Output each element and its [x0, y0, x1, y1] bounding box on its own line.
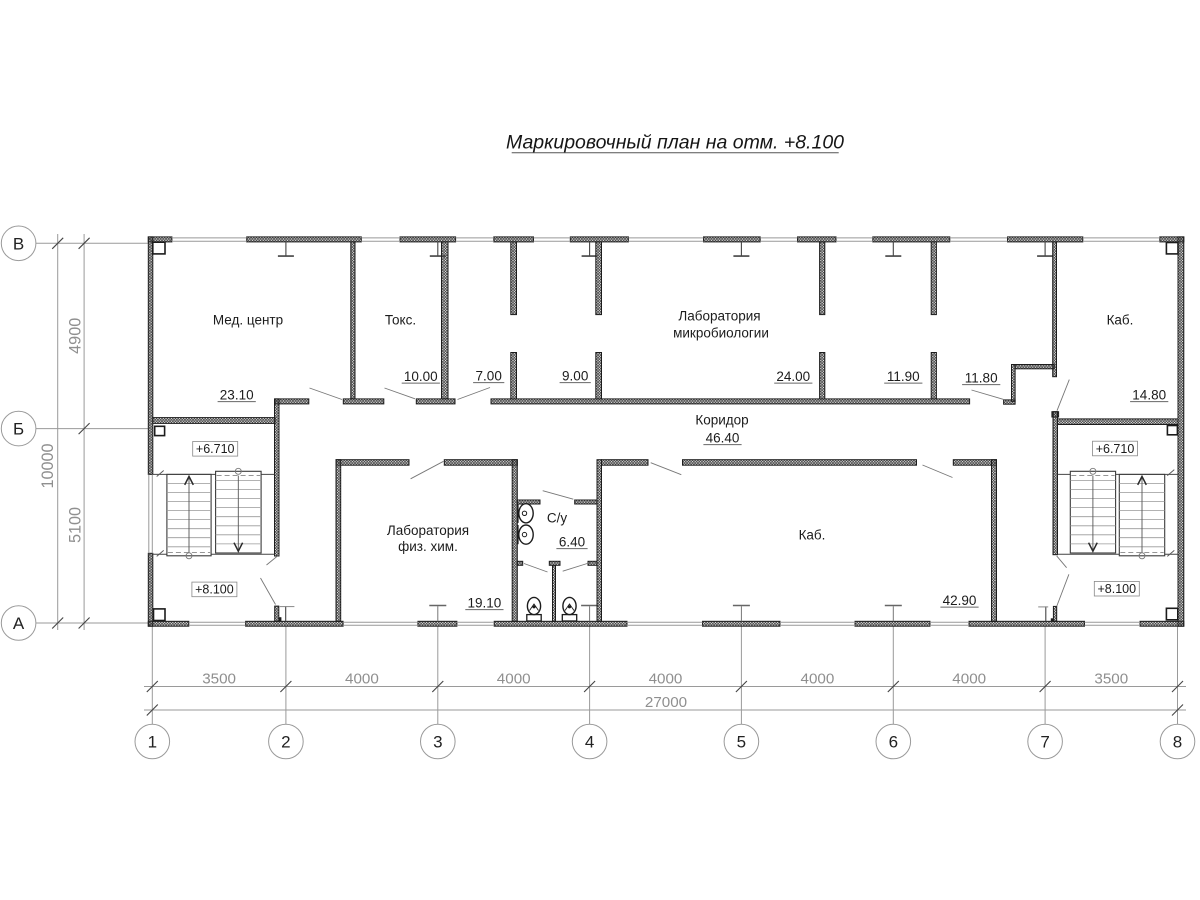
svg-text:4000: 4000 — [801, 671, 835, 688]
svg-text:3: 3 — [433, 733, 442, 752]
svg-text:+8.100: +8.100 — [1098, 582, 1137, 596]
svg-text:Б: Б — [13, 420, 24, 439]
svg-text:8: 8 — [1173, 733, 1182, 752]
svg-text:А: А — [13, 614, 25, 633]
svg-text:24.00: 24.00 — [776, 369, 810, 384]
svg-text:7: 7 — [1040, 733, 1049, 752]
svg-text:6: 6 — [889, 733, 898, 752]
svg-text:4000: 4000 — [345, 671, 379, 688]
svg-text:4000: 4000 — [497, 671, 531, 688]
svg-text:27000: 27000 — [645, 694, 687, 711]
svg-text:+6.710: +6.710 — [1096, 442, 1135, 456]
svg-text:В: В — [13, 234, 24, 253]
svg-text:7.00: 7.00 — [476, 369, 502, 384]
svg-text:Каб.: Каб. — [799, 528, 826, 543]
svg-text:Коридор: Коридор — [695, 413, 748, 428]
svg-text:С/у: С/у — [547, 511, 568, 526]
svg-text:Токс.: Токс. — [385, 312, 416, 327]
svg-text:5100: 5100 — [67, 507, 85, 543]
svg-text:4000: 4000 — [649, 671, 683, 688]
svg-text:2: 2 — [281, 733, 290, 752]
svg-text:6.40: 6.40 — [559, 535, 585, 550]
svg-text:10000: 10000 — [39, 443, 57, 488]
svg-text:4900: 4900 — [67, 318, 85, 354]
svg-text:микробиологии: микробиологии — [673, 326, 769, 341]
svg-text:Лаборатория: Лаборатория — [678, 309, 760, 324]
svg-text:14.80: 14.80 — [1132, 388, 1166, 403]
svg-text:9.00: 9.00 — [562, 369, 588, 384]
svg-text:3500: 3500 — [1094, 671, 1128, 688]
svg-text:5: 5 — [737, 733, 746, 752]
svg-text:11.80: 11.80 — [965, 371, 998, 386]
svg-text:физ. хим.: физ. хим. — [398, 539, 458, 554]
svg-text:23.10: 23.10 — [220, 388, 254, 403]
svg-text:Лаборатория: Лаборатория — [387, 523, 469, 538]
svg-text:+8.100: +8.100 — [195, 583, 234, 597]
svg-text:4000: 4000 — [952, 671, 986, 688]
svg-text:Мед. центр: Мед. центр — [213, 312, 283, 327]
svg-text:3500: 3500 — [202, 671, 236, 688]
svg-text:1: 1 — [148, 733, 157, 752]
svg-text:46.40: 46.40 — [706, 431, 740, 446]
svg-text:Каб.: Каб. — [1107, 313, 1134, 328]
svg-text:42.90: 42.90 — [943, 593, 977, 608]
svg-text:4: 4 — [585, 733, 594, 752]
svg-text:19.10: 19.10 — [468, 596, 502, 611]
svg-text:+6.710: +6.710 — [196, 442, 235, 456]
svg-text:11.90: 11.90 — [887, 369, 920, 384]
svg-text:Маркировочный план на отм. +8.: Маркировочный план на отм. +8.100 — [506, 132, 844, 154]
svg-text:10.00: 10.00 — [404, 369, 438, 384]
